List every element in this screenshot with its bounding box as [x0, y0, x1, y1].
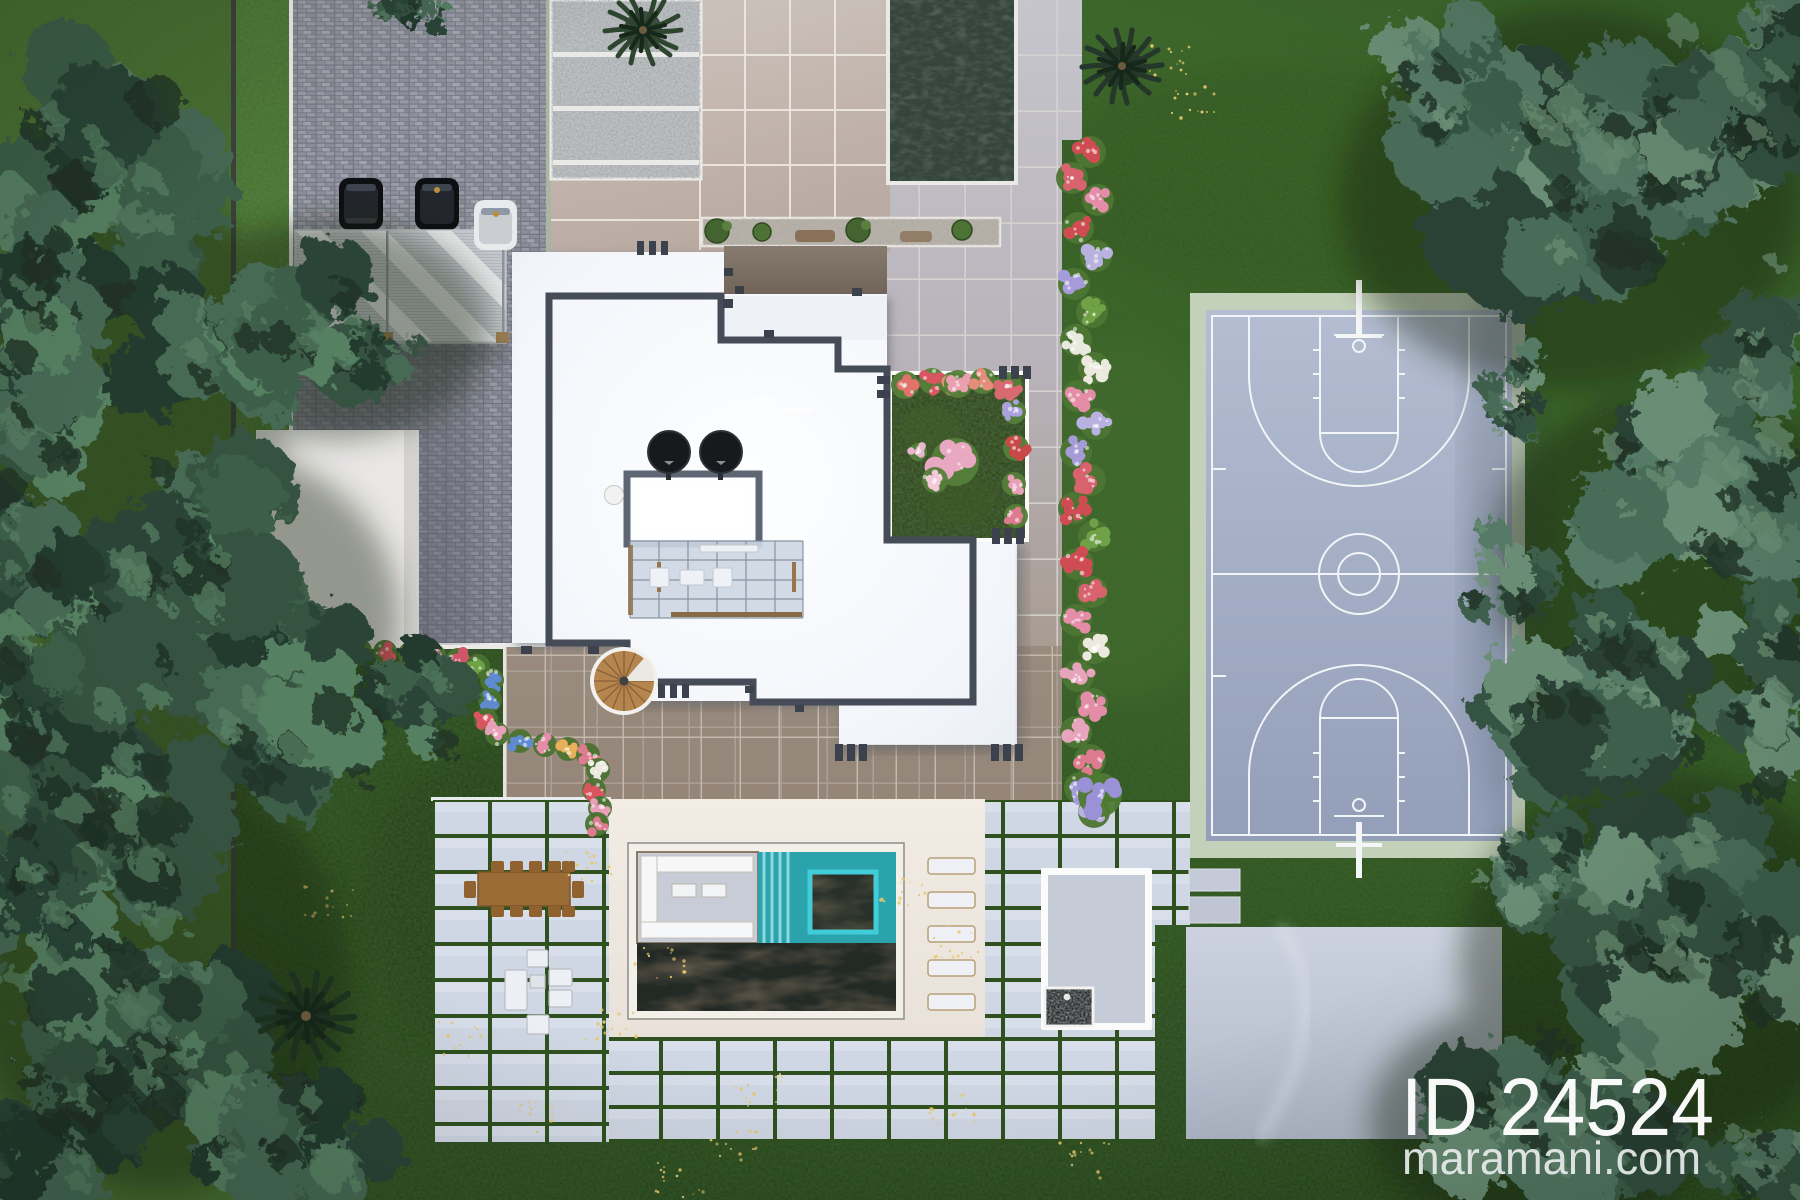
svg-text:maramani.com: maramani.com — [1402, 1132, 1701, 1184]
